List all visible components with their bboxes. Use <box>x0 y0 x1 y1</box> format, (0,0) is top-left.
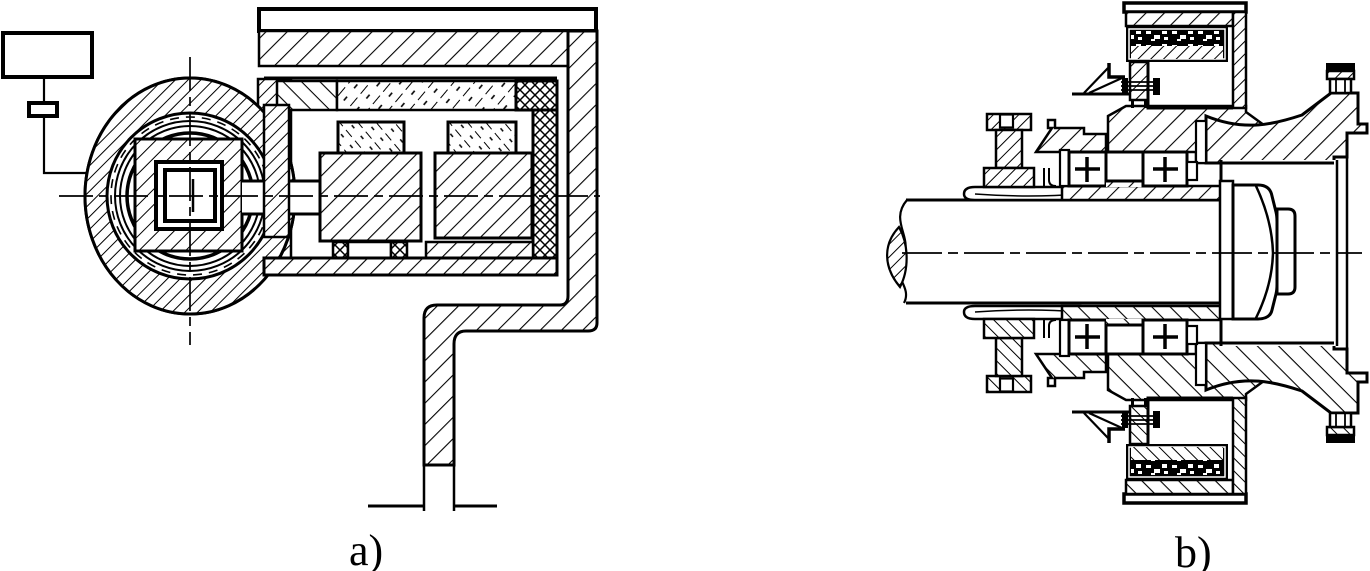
svg-text:b): b) <box>1175 528 1212 571</box>
svg-text:a): a) <box>349 526 383 571</box>
